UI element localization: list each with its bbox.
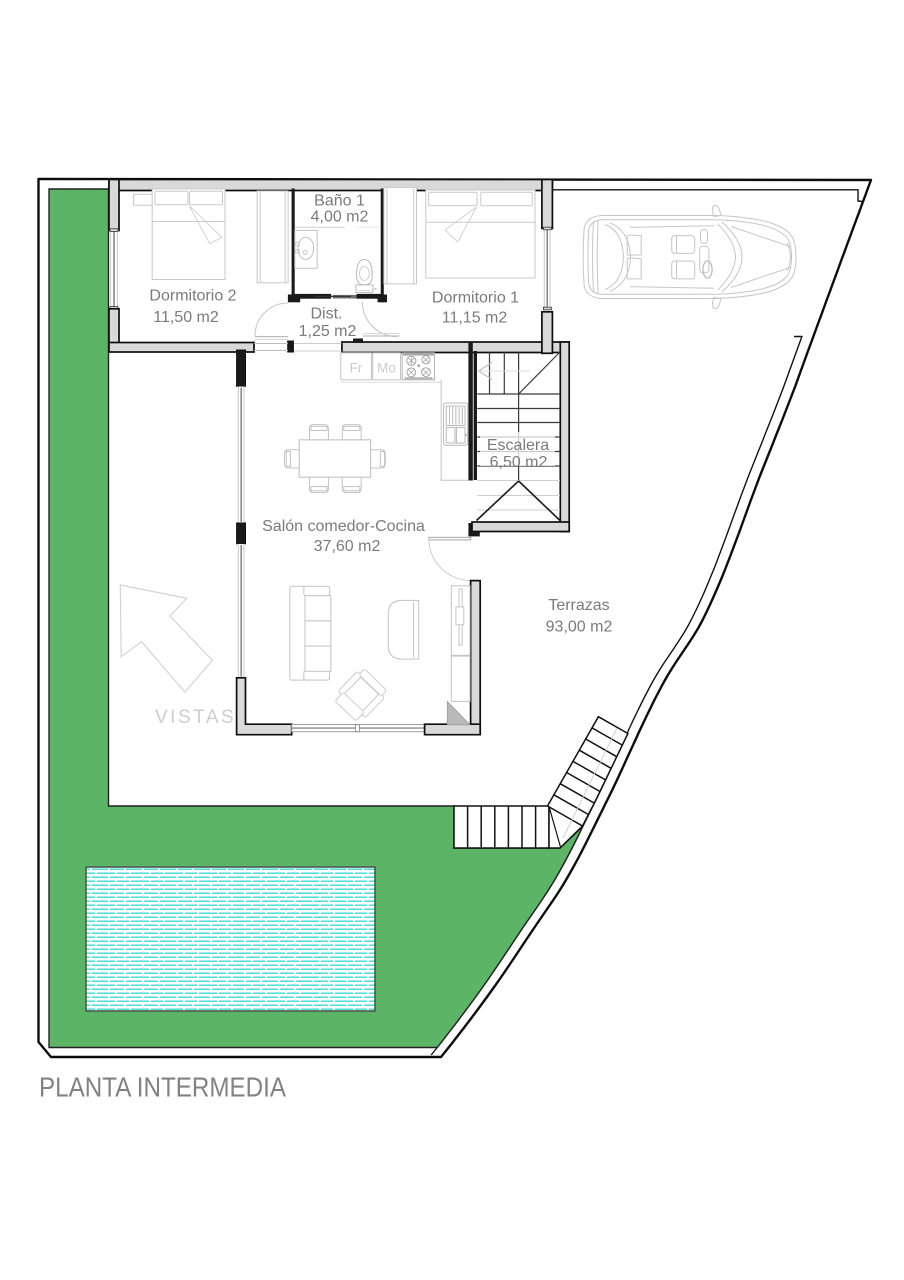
svg-text:4,00 m2: 4,00 m2 bbox=[311, 209, 369, 226]
svg-text:6,50 m2: 6,50 m2 bbox=[490, 454, 548, 471]
svg-text:Salón comedor-Cocina: Salón comedor-Cocina bbox=[262, 518, 425, 535]
svg-text:11,50 m2: 11,50 m2 bbox=[153, 309, 219, 326]
svg-text:PLANTA INTERMEDIA: PLANTA INTERMEDIA bbox=[39, 1072, 286, 1103]
svg-text:Terrazas: Terrazas bbox=[548, 597, 609, 614]
svg-text:Dist.: Dist. bbox=[311, 306, 343, 323]
svg-text:37,60 m2: 37,60 m2 bbox=[314, 538, 381, 555]
svg-text:1,25 m2: 1,25 m2 bbox=[299, 323, 357, 340]
svg-text:93,00 m2: 93,00 m2 bbox=[546, 619, 613, 636]
svg-text:Baño 1: Baño 1 bbox=[314, 193, 365, 210]
svg-text:11,15 m2: 11,15 m2 bbox=[442, 310, 508, 327]
svg-text:VISTAS: VISTAS bbox=[155, 707, 236, 728]
svg-text:Fr: Fr bbox=[350, 361, 363, 376]
svg-text:Mo: Mo bbox=[377, 361, 396, 376]
svg-text:Dormitorio 2: Dormitorio 2 bbox=[149, 288, 236, 305]
svg-text:Escalera: Escalera bbox=[487, 437, 549, 454]
svg-text:Dormitorio 1: Dormitorio 1 bbox=[432, 290, 519, 307]
